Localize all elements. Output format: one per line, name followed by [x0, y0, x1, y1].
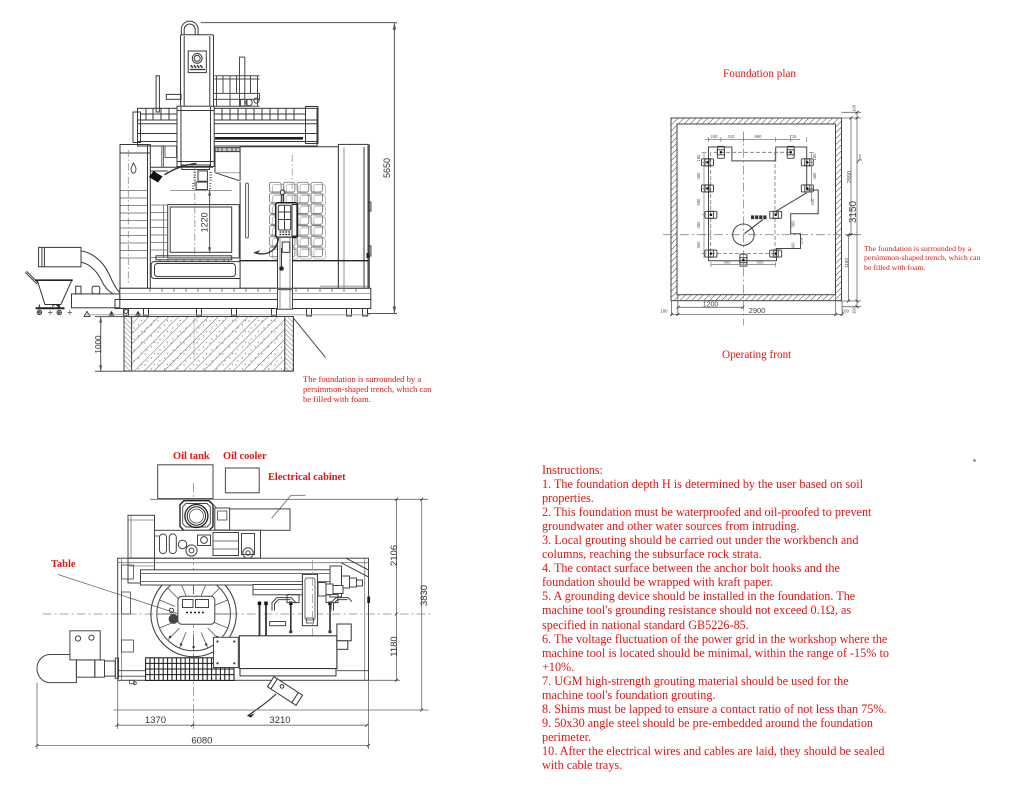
svg-text:715: 715: [790, 134, 798, 139]
svg-text:480: 480: [696, 172, 701, 180]
svg-text:585: 585: [757, 260, 765, 265]
svg-text:2106: 2106: [389, 545, 400, 566]
svg-text:380: 380: [696, 221, 701, 229]
svg-text:475: 475: [799, 237, 804, 245]
svg-text:240: 240: [711, 134, 719, 139]
svg-text:1180: 1180: [389, 636, 400, 656]
svg-text:5650: 5650: [382, 158, 392, 178]
svg-text:1200: 1200: [703, 301, 719, 308]
svg-text:440: 440: [810, 198, 815, 206]
svg-text:180: 180: [812, 153, 817, 161]
svg-text:360: 360: [791, 220, 796, 228]
svg-text:410: 410: [728, 134, 736, 139]
svg-text:1220: 1220: [199, 212, 209, 232]
svg-text:100: 100: [661, 309, 669, 314]
svg-text:100: 100: [842, 309, 850, 314]
svg-text:1370: 1370: [145, 715, 166, 726]
svg-text:2950: 2950: [847, 171, 853, 183]
svg-text:360: 360: [791, 242, 796, 250]
svg-text:480: 480: [812, 172, 817, 180]
svg-text:100: 100: [852, 104, 857, 112]
svg-text:180: 180: [696, 154, 701, 162]
svg-text:585: 585: [724, 260, 732, 265]
svg-text:6080: 6080: [191, 735, 212, 746]
svg-text:680: 680: [696, 198, 701, 206]
svg-text:360: 360: [696, 241, 701, 249]
svg-text:100: 100: [852, 306, 857, 314]
svg-text:3210: 3210: [269, 715, 290, 726]
svg-text:3830: 3830: [419, 585, 430, 606]
svg-text:1150: 1150: [844, 258, 849, 268]
svg-text:2900: 2900: [749, 306, 766, 315]
svg-text:1000: 1000: [94, 335, 103, 354]
svg-text:960: 960: [755, 134, 763, 139]
svg-text:3150: 3150: [848, 200, 859, 223]
